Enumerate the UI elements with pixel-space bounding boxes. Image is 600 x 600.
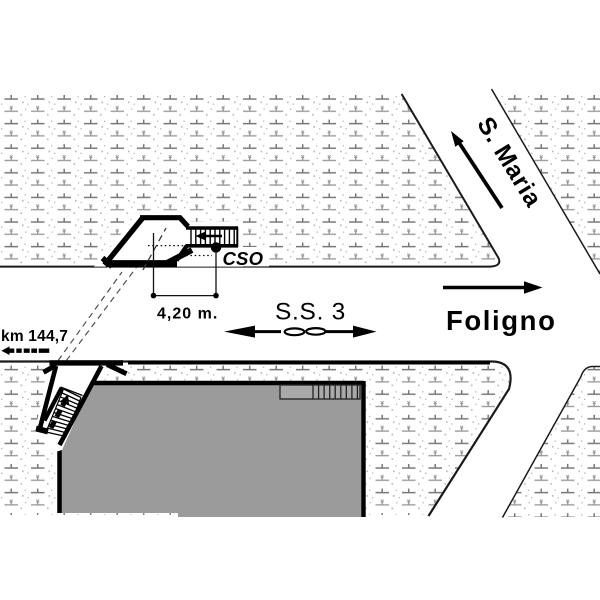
svg-text:4,20 m.: 4,20 m. — [157, 306, 218, 323]
svg-text:S.S. 3: S.S. 3 — [275, 299, 346, 326]
svg-text:CSO: CSO — [223, 248, 264, 269]
svg-text:Foligno: Foligno — [446, 305, 556, 336]
svg-text:km 144,7: km 144,7 — [1, 328, 68, 345]
